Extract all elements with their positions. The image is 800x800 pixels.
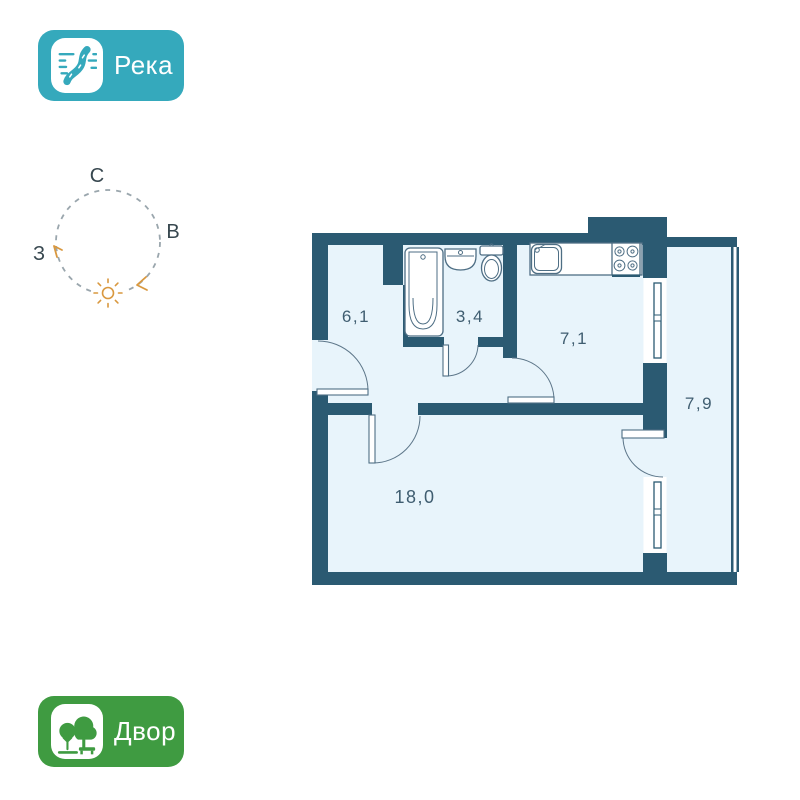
sun-path-arrow-east bbox=[137, 277, 147, 290]
kitchen-window bbox=[644, 278, 667, 363]
wall-protrusion bbox=[588, 217, 667, 234]
yard-icon-tile bbox=[51, 704, 103, 759]
bathroom-sink-icon bbox=[445, 249, 476, 270]
room-label-living-room: 18,0 bbox=[394, 487, 435, 507]
floor-plan: 6,1 3,4 7,1 7,9 18,0 bbox=[0, 0, 800, 800]
balcony-glazing bbox=[731, 247, 739, 572]
kitchen-sink-icon bbox=[532, 245, 562, 274]
room-label-balcony: 7,9 bbox=[685, 394, 713, 413]
stove-icon bbox=[612, 243, 640, 277]
room-label-kitchen: 7,1 bbox=[560, 329, 588, 348]
river-badge-label: Река bbox=[114, 50, 173, 81]
river-icon-tile bbox=[51, 38, 103, 93]
river-badge: Река bbox=[38, 30, 184, 101]
room-label-bathroom: 3,4 bbox=[456, 307, 484, 326]
compass: С В З bbox=[20, 150, 200, 320]
compass-west-label: З bbox=[33, 243, 45, 265]
sun-path-arrow-west bbox=[54, 246, 62, 257]
river-icon bbox=[57, 45, 97, 87]
toilet-icon bbox=[480, 244, 503, 281]
yard-icon bbox=[56, 709, 98, 755]
yard-badge: Двор bbox=[38, 696, 184, 767]
bathtub-icon bbox=[405, 248, 443, 336]
yard-badge-label: Двор bbox=[114, 716, 176, 747]
room-label-hallway: 6,1 bbox=[342, 307, 370, 326]
compass-east-label: В bbox=[166, 221, 179, 243]
compass-north-label: С bbox=[90, 165, 104, 187]
living-room-window bbox=[644, 477, 667, 553]
